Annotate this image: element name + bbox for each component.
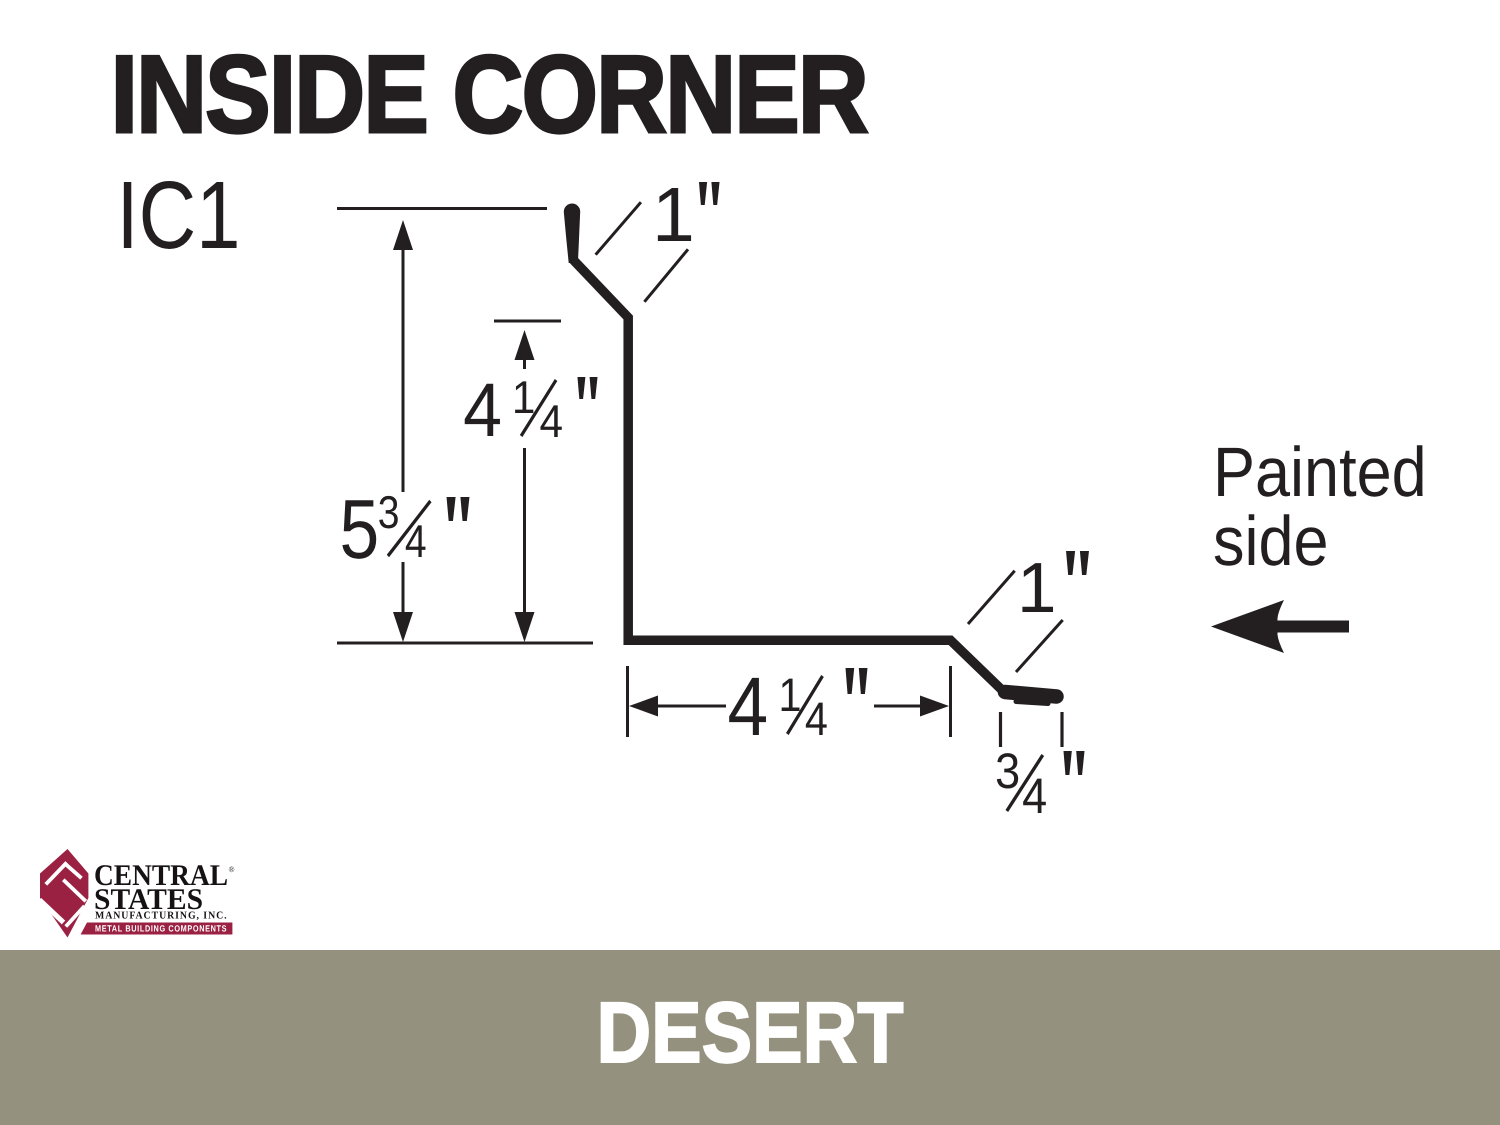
svg-text:4: 4 — [463, 368, 502, 453]
svg-text:3: 3 — [995, 743, 1020, 799]
svg-text:4: 4 — [805, 692, 828, 745]
svg-text:4: 4 — [405, 515, 427, 567]
svg-text:Painted: Painted — [1213, 433, 1427, 511]
svg-text:IC1: IC1 — [117, 162, 241, 269]
svg-text:®: ® — [229, 865, 235, 874]
svg-text:side: side — [1213, 502, 1329, 580]
svg-text:5: 5 — [339, 482, 379, 576]
svg-text:4: 4 — [1022, 768, 1047, 824]
svg-text:MANUFACTURING, INC.: MANUFACTURING, INC. — [95, 911, 228, 922]
svg-text:4: 4 — [727, 660, 768, 753]
svg-text:4: 4 — [540, 395, 564, 447]
svg-text:DESERT: DESERT — [597, 985, 904, 1081]
svg-text:1: 1 — [512, 371, 536, 423]
svg-text:METAL BUILDING COMPONENTS: METAL BUILDING COMPONENTS — [95, 924, 227, 934]
svg-text:3: 3 — [378, 486, 400, 538]
svg-text:1: 1 — [1017, 549, 1057, 628]
svg-text:INSIDE CORNER: INSIDE CORNER — [111, 33, 868, 156]
svg-text:1: 1 — [779, 668, 802, 721]
svg-text:1: 1 — [652, 172, 695, 258]
